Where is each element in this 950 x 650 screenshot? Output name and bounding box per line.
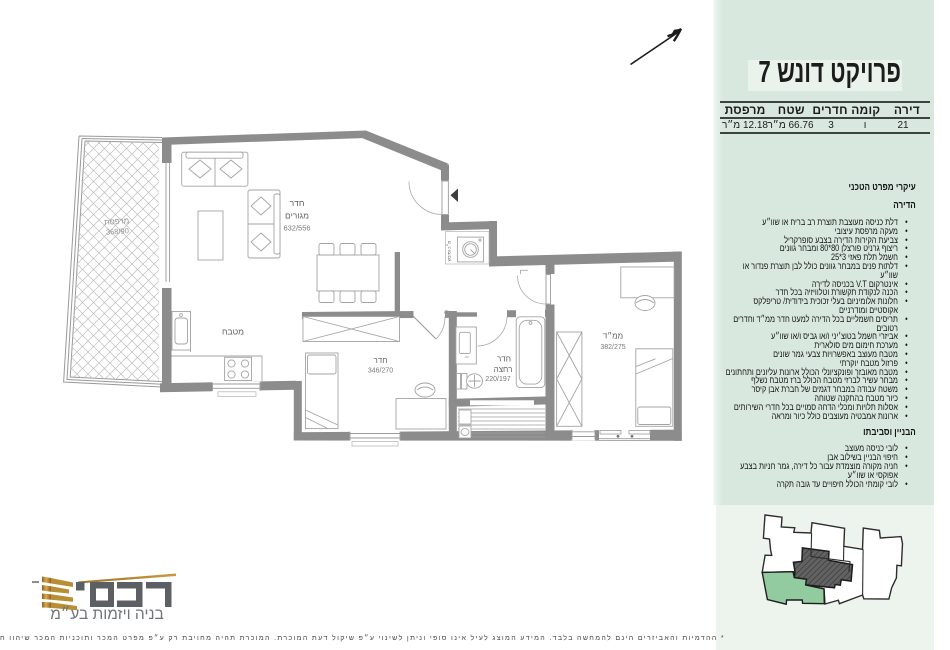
svg-text:מגורים: מגורים	[285, 211, 309, 221]
svg-text:רחצה: רחצה	[494, 365, 513, 374]
svg-text:346/270: 346/270	[368, 368, 393, 375]
svg-text:632/556: 632/556	[283, 224, 310, 233]
svg-text:חדר: חדר	[290, 198, 305, 208]
svg-text:368/90: 368/90	[106, 226, 130, 237]
svg-text:מ״כ ומיבש: מ״כ ומיבש	[447, 241, 452, 262]
svg-text:חדר: חדר	[497, 355, 511, 364]
svg-text:חדר: חדר	[374, 356, 388, 365]
svg-text:ממ״ד: ממ״ד	[603, 332, 623, 341]
svg-text:382/275: 382/275	[600, 344, 625, 351]
svg-text:220/197: 220/197	[485, 376, 510, 383]
svg-text:מטבח: מטבח	[222, 327, 244, 337]
svg-text:מרפסת: מרפסת	[104, 216, 130, 227]
